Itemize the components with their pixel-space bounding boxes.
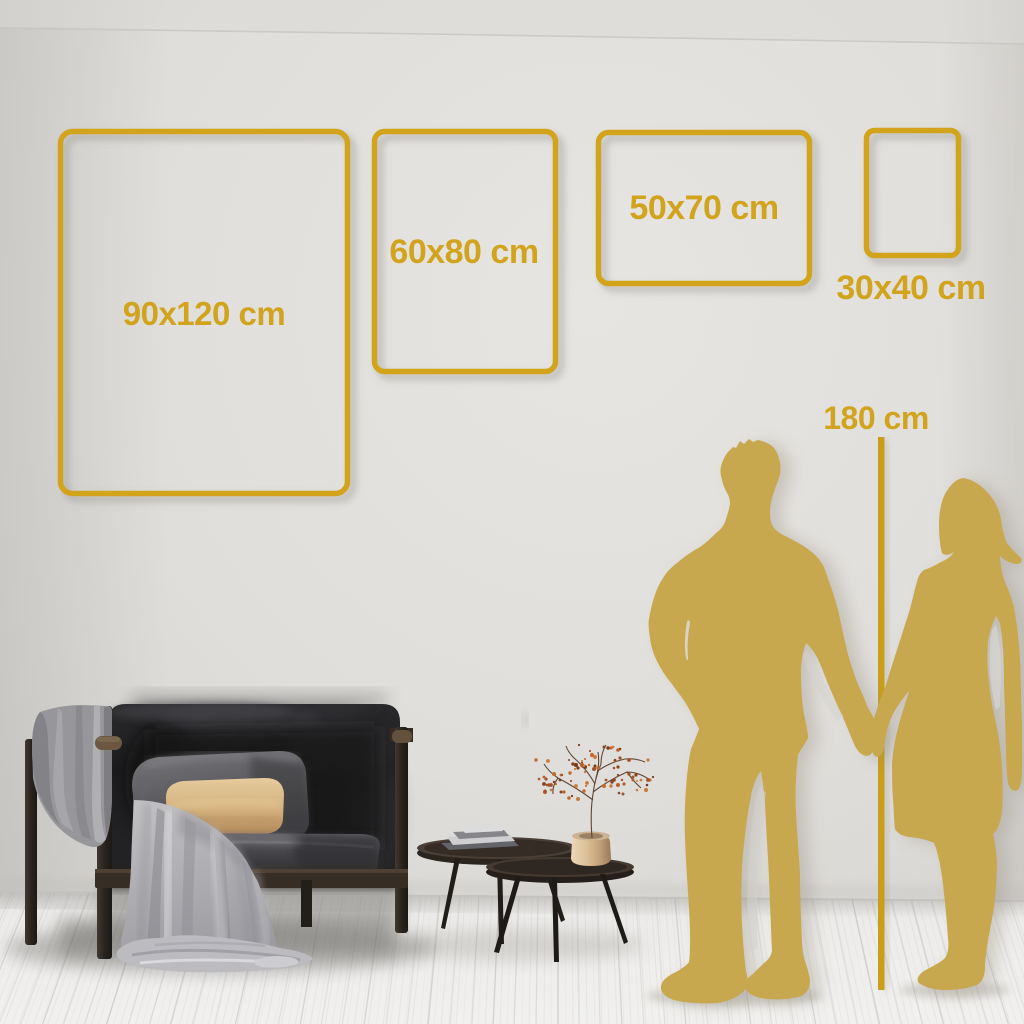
svg-text:60x80 cm: 60x80 cm [389,233,538,271]
svg-text:90x120 cm: 90x120 cm [123,295,285,332]
svg-text:50x70 cm: 50x70 cm [629,189,778,227]
svg-text:180 cm: 180 cm [823,400,929,436]
svg-text:30x40 cm: 30x40 cm [836,269,985,307]
